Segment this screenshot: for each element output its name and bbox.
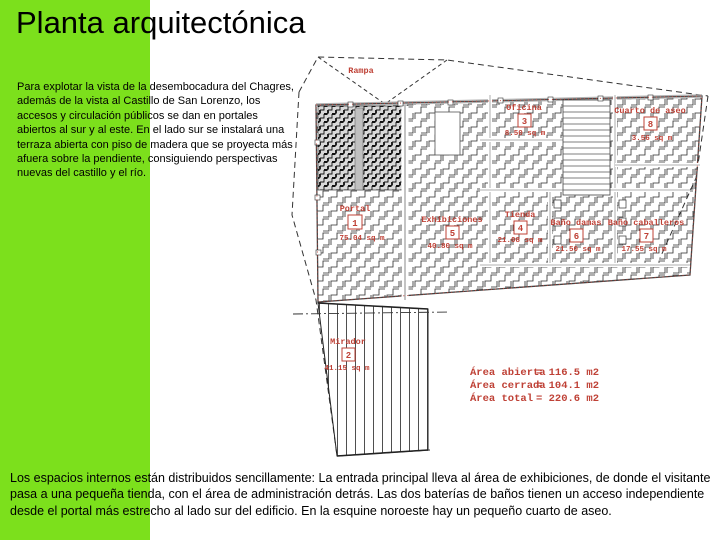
room-area-portal: 75.04 sq m [339, 235, 385, 243]
summary-value-abierta: = 116.5 m2 [536, 367, 599, 379]
room-number-cuarto-aseo: 8 [648, 120, 653, 130]
footer-paragraph: Los espacios internos están distribuidos… [10, 470, 712, 519]
room-label-cuarto-aseo: Cuarto de aseo [614, 106, 685, 116]
summary-label-abierta: Área abierta [470, 365, 546, 379]
ramp-label: Rampa [348, 66, 374, 76]
room-number-exhibiciones: 5 [450, 229, 455, 239]
room-area-bano-damas: 21.50 sq m [555, 246, 601, 254]
room-label-mirador: Mirador [330, 337, 366, 347]
room-label-exhibiciones: Exhibiciones [421, 215, 482, 225]
summary-value-cerrada: = 104.1 m2 [536, 380, 599, 392]
room-label-oficina: Oficina [506, 103, 542, 113]
room-number-oficina: 3 [522, 117, 527, 127]
room-area-exhibiciones: 40.80 sq m [427, 243, 473, 251]
room-area-cuarto-aseo: 3.56 sq m [632, 135, 673, 143]
entrance-recess [435, 112, 460, 155]
summary-label-cerrada: Área cerrada [470, 378, 546, 392]
page-title: Planta arquitectónica [16, 5, 306, 41]
mirador-deck [293, 303, 448, 456]
summary-label-total: Área total [470, 391, 533, 405]
room-area-oficina: 8.50 sq m [505, 130, 546, 138]
room-label-tienda: Tienda [505, 210, 536, 220]
summary-value-total: = 220.6 m2 [536, 393, 599, 405]
room-area-bano-caballeros: 17.55 sq m [621, 246, 667, 254]
room-number-tienda: 4 [518, 224, 524, 234]
room-label-portal: Portal [340, 204, 371, 214]
area-summary: Área abierta = 116.5 m2 Área cerrada = 1… [470, 365, 599, 405]
staircase [563, 100, 610, 195]
floor-plan: Rampa Portal 1 75.04 sq m Exhibiciones 5… [288, 50, 720, 466]
slide: Planta arquitectónica Para explotar la v… [0, 0, 720, 540]
room-number-mirador: 2 [346, 351, 351, 361]
room-area-mirador: 41.15 sq m [324, 365, 370, 373]
room-area-tienda: 21.08 sq m [497, 237, 543, 245]
room-label-bano-caballeros: Baño caballeros [608, 218, 685, 228]
room-number-bano-damas: 6 [574, 232, 579, 242]
room-number-bano-caballeros: 7 [644, 232, 649, 242]
intro-paragraph: Para explotar la vista de la desembocadu… [17, 80, 295, 181]
room-label-bano-damas: Baño damas [550, 218, 601, 228]
ramp-zone [318, 106, 408, 190]
room-number-portal: 1 [352, 219, 358, 229]
